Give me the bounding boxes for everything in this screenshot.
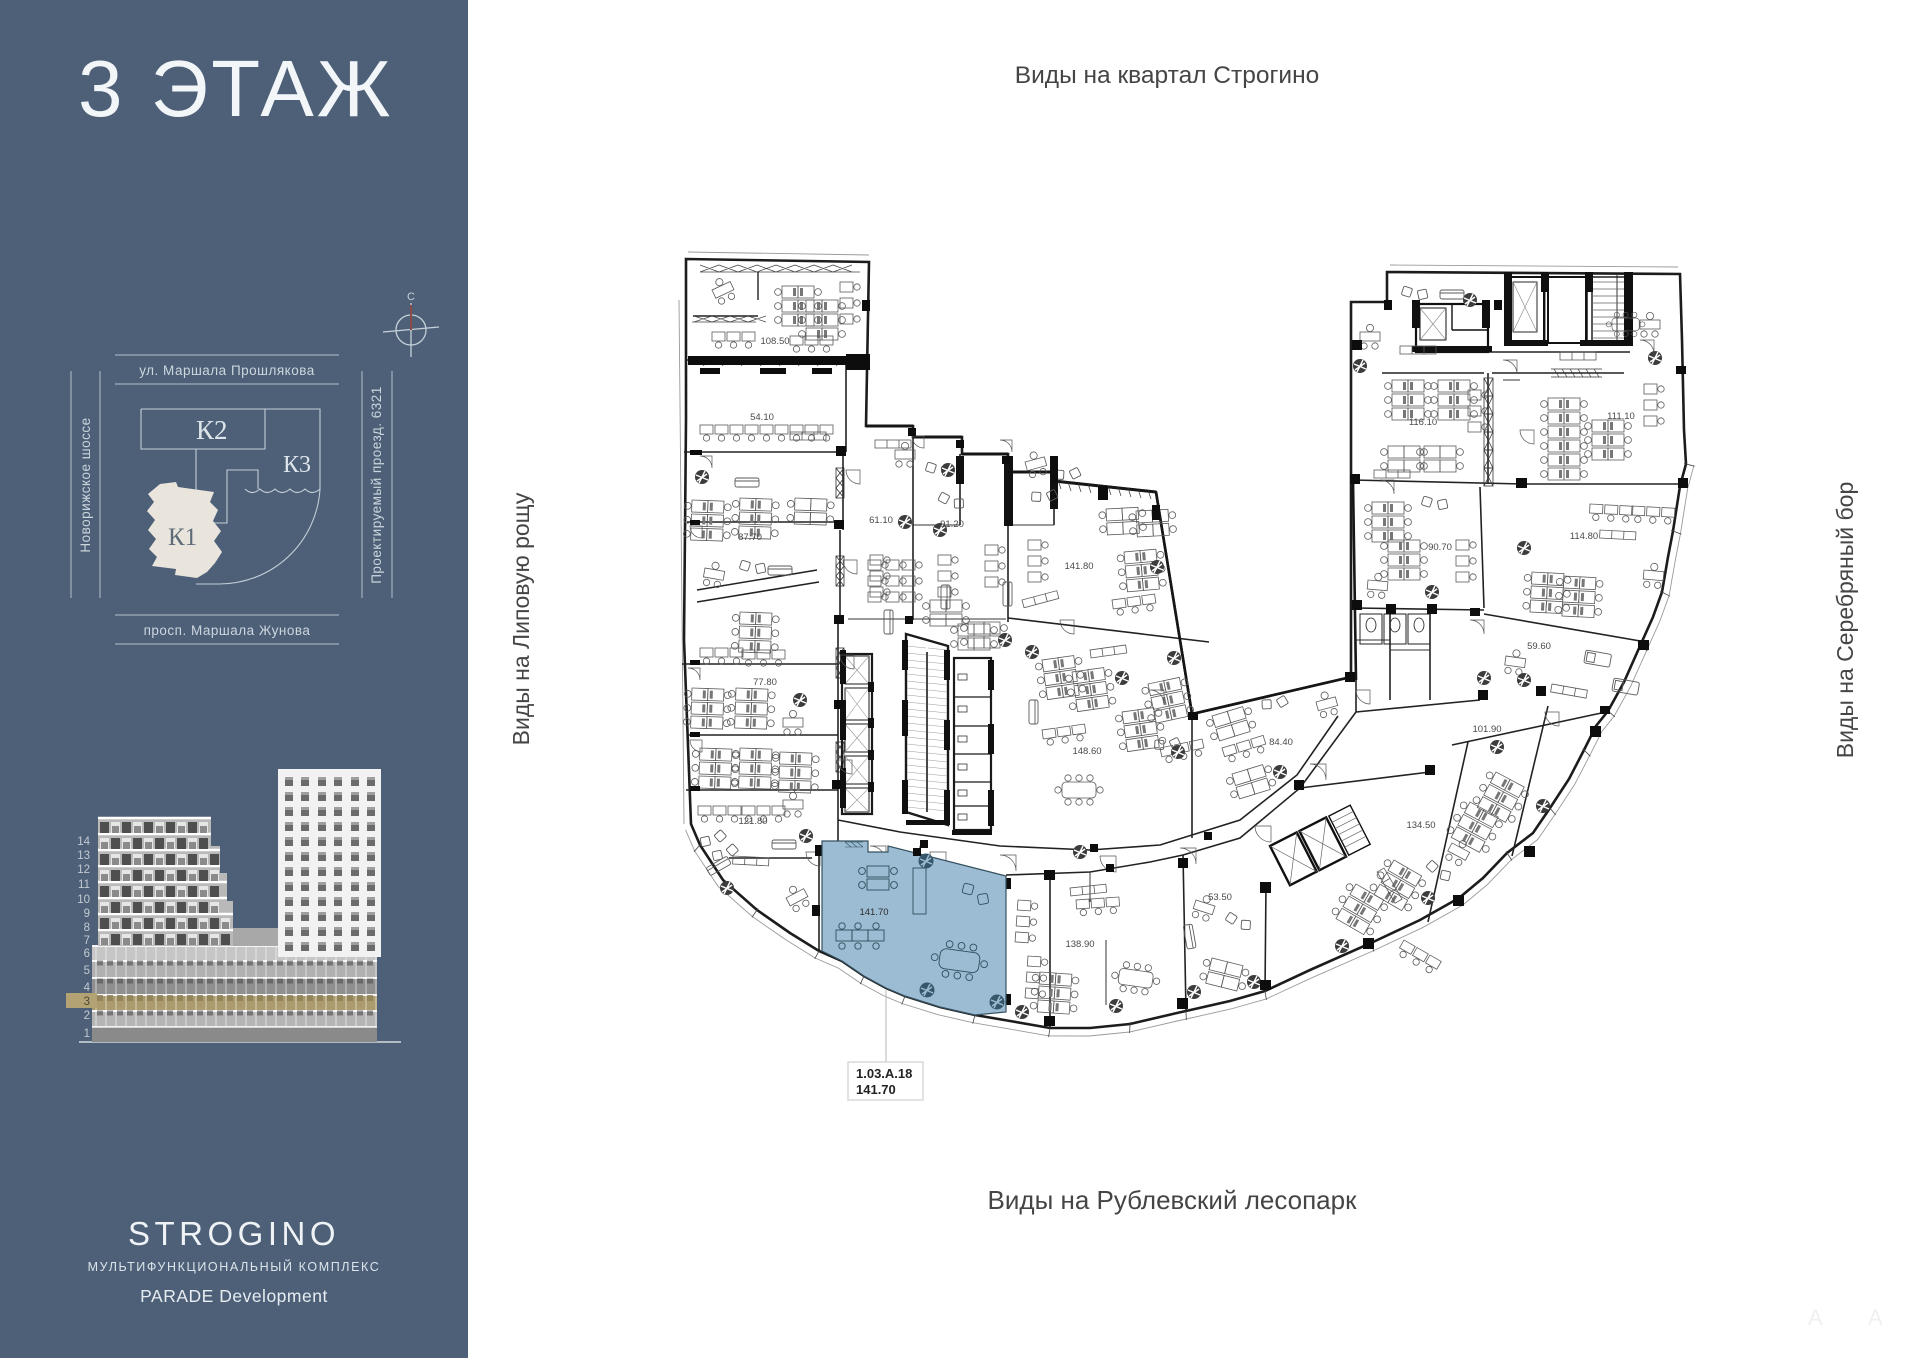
svg-text:14: 14 [77, 836, 90, 848]
svg-text:114.80: 114.80 [1570, 531, 1598, 542]
svg-text:61.10: 61.10 [869, 515, 893, 526]
svg-text:90.70: 90.70 [1428, 542, 1452, 553]
svg-text:111.10: 111.10 [1607, 411, 1635, 422]
svg-text:10: 10 [77, 894, 90, 906]
svg-text:138.90: 138.90 [1065, 939, 1094, 950]
svg-text:108.50: 108.50 [760, 336, 789, 347]
svg-text:1: 1 [84, 1028, 90, 1040]
svg-text:87.70: 87.70 [738, 532, 762, 543]
svg-text:116.10: 116.10 [1409, 417, 1437, 428]
svg-text:К1: К1 [168, 524, 197, 551]
svg-text:Виды на Липовую рощу: Виды на Липовую рощу [508, 492, 534, 745]
svg-text:11: 11 [78, 879, 90, 891]
svg-text:Новорижское шоссе: Новорижское шоссе [78, 417, 93, 552]
svg-text:Виды на Рублевский лесопарк: Виды на Рублевский лесопарк [988, 1185, 1358, 1215]
svg-text:141.70: 141.70 [856, 1082, 896, 1097]
svg-text:А: А [1868, 1305, 1883, 1330]
svg-text:6: 6 [84, 948, 90, 960]
svg-text:77.80: 77.80 [753, 677, 777, 688]
svg-text:8: 8 [84, 922, 90, 934]
svg-text:91.20: 91.20 [940, 519, 964, 530]
svg-text:84.40: 84.40 [1269, 737, 1293, 748]
svg-text:148.60: 148.60 [1072, 746, 1101, 757]
svg-text:3 ЭТАЖ: 3 ЭТАЖ [78, 44, 394, 133]
svg-text:3: 3 [84, 996, 90, 1008]
svg-text:1.03.А.18: 1.03.А.18 [856, 1066, 912, 1081]
svg-text:PARADE Development: PARADE Development [140, 1286, 328, 1306]
svg-text:12: 12 [77, 864, 90, 876]
svg-text:54.10: 54.10 [750, 412, 774, 423]
svg-text:К2: К2 [196, 415, 228, 445]
svg-text:К3: К3 [283, 452, 311, 478]
svg-text:STROGINO: STROGINO [128, 1215, 340, 1252]
svg-text:С: С [407, 291, 415, 303]
svg-text:53.50: 53.50 [1208, 892, 1232, 903]
svg-text:ул. Маршала Прошлякова: ул. Маршала Прошлякова [139, 363, 315, 378]
svg-text:141.70: 141.70 [859, 907, 888, 918]
svg-text:7: 7 [84, 935, 90, 947]
svg-text:121.80: 121.80 [738, 816, 767, 827]
svg-text:5: 5 [84, 965, 90, 977]
svg-text:Виды на квартал Строгино: Виды на квартал Строгино [1015, 62, 1320, 89]
svg-text:59.60: 59.60 [1527, 641, 1551, 652]
svg-text:9: 9 [84, 908, 90, 920]
svg-text:4: 4 [84, 982, 91, 994]
svg-text:МУЛЬТИФУНКЦИОНАЛЬНЫЙ КОМПЛЕКС: МУЛЬТИФУНКЦИОНАЛЬНЫЙ КОМПЛЕКС [88, 1259, 381, 1274]
svg-text:101.90: 101.90 [1472, 724, 1501, 735]
svg-text:Виды на Серебряный бор: Виды на Серебряный бор [1832, 482, 1858, 759]
svg-text:А: А [1808, 1305, 1823, 1330]
svg-text:13: 13 [77, 850, 90, 862]
svg-text:141.80: 141.80 [1064, 561, 1093, 572]
svg-text:Проектируемый проезд. 6321: Проектируемый проезд. 6321 [369, 386, 384, 584]
svg-text:2: 2 [84, 1010, 90, 1022]
svg-text:просп. Маршала Жунова: просп. Маршала Жунова [144, 623, 311, 638]
svg-text:134.50: 134.50 [1406, 820, 1435, 831]
